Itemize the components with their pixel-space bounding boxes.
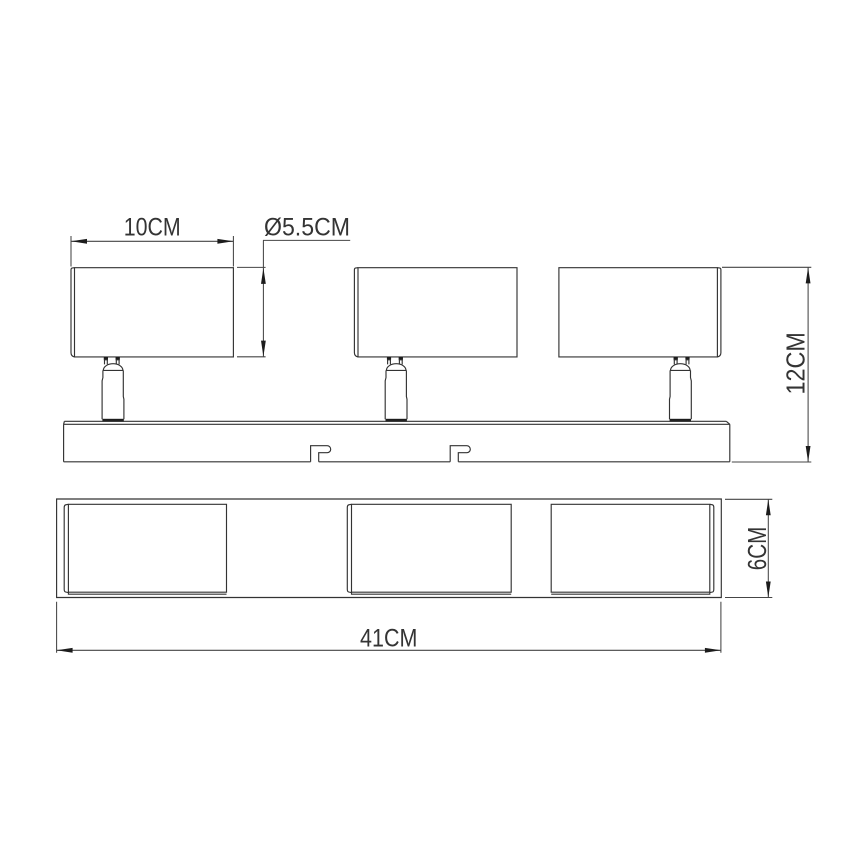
svg-text:10CM: 10CM <box>124 215 181 242</box>
svg-text:12CM: 12CM <box>781 332 811 394</box>
svg-text:Ø5.5CM: Ø5.5CM <box>264 215 350 242</box>
svg-text:41CM: 41CM <box>360 626 417 653</box>
svg-text:6CM: 6CM <box>742 527 772 571</box>
